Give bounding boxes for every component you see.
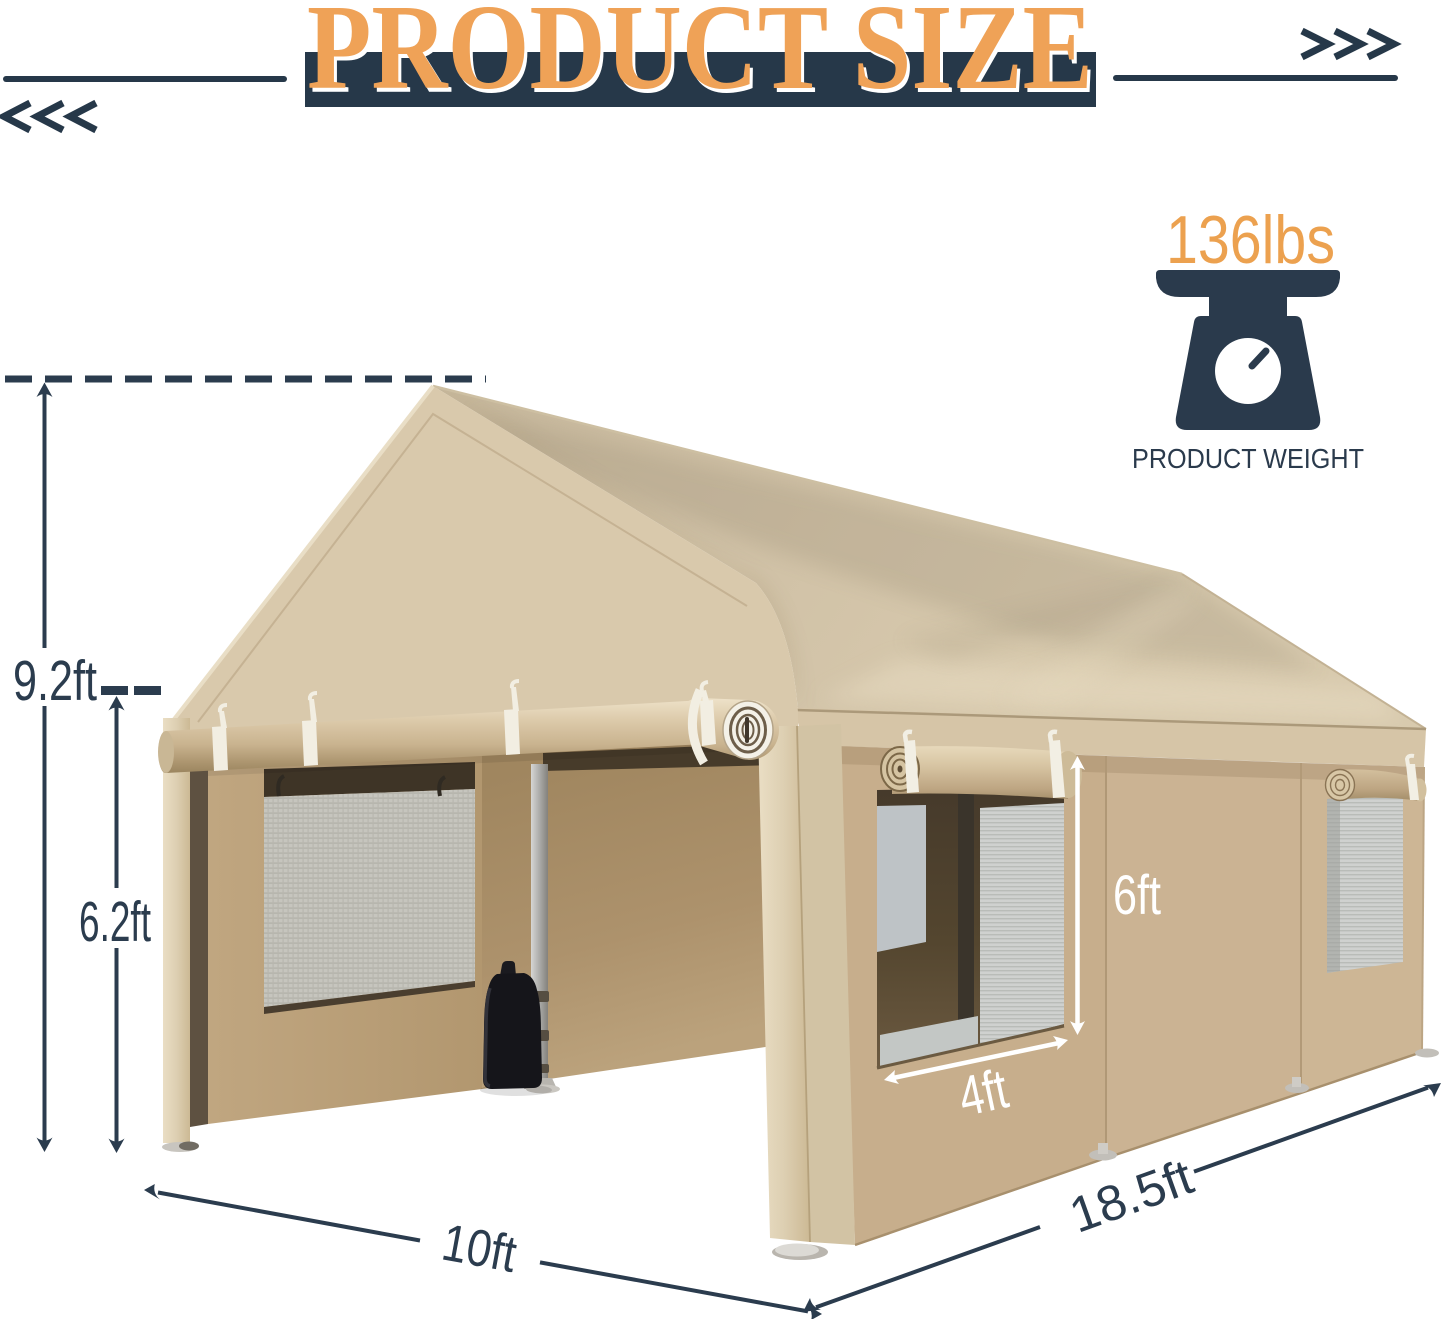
svg-text:PRODUCT WEIGHT: PRODUCT WEIGHT: [1132, 443, 1364, 474]
svg-text:6ft: 6ft: [1113, 863, 1161, 926]
svg-text:9.2ft: 9.2ft: [13, 649, 97, 713]
svg-text:136lbs: 136lbs: [1166, 202, 1335, 278]
svg-text:PRODUCT SIZE: PRODUCT SIZE: [307, 0, 1093, 115]
svg-text:10ft: 10ft: [438, 1214, 522, 1284]
svg-text:6.2ft: 6.2ft: [79, 890, 151, 954]
